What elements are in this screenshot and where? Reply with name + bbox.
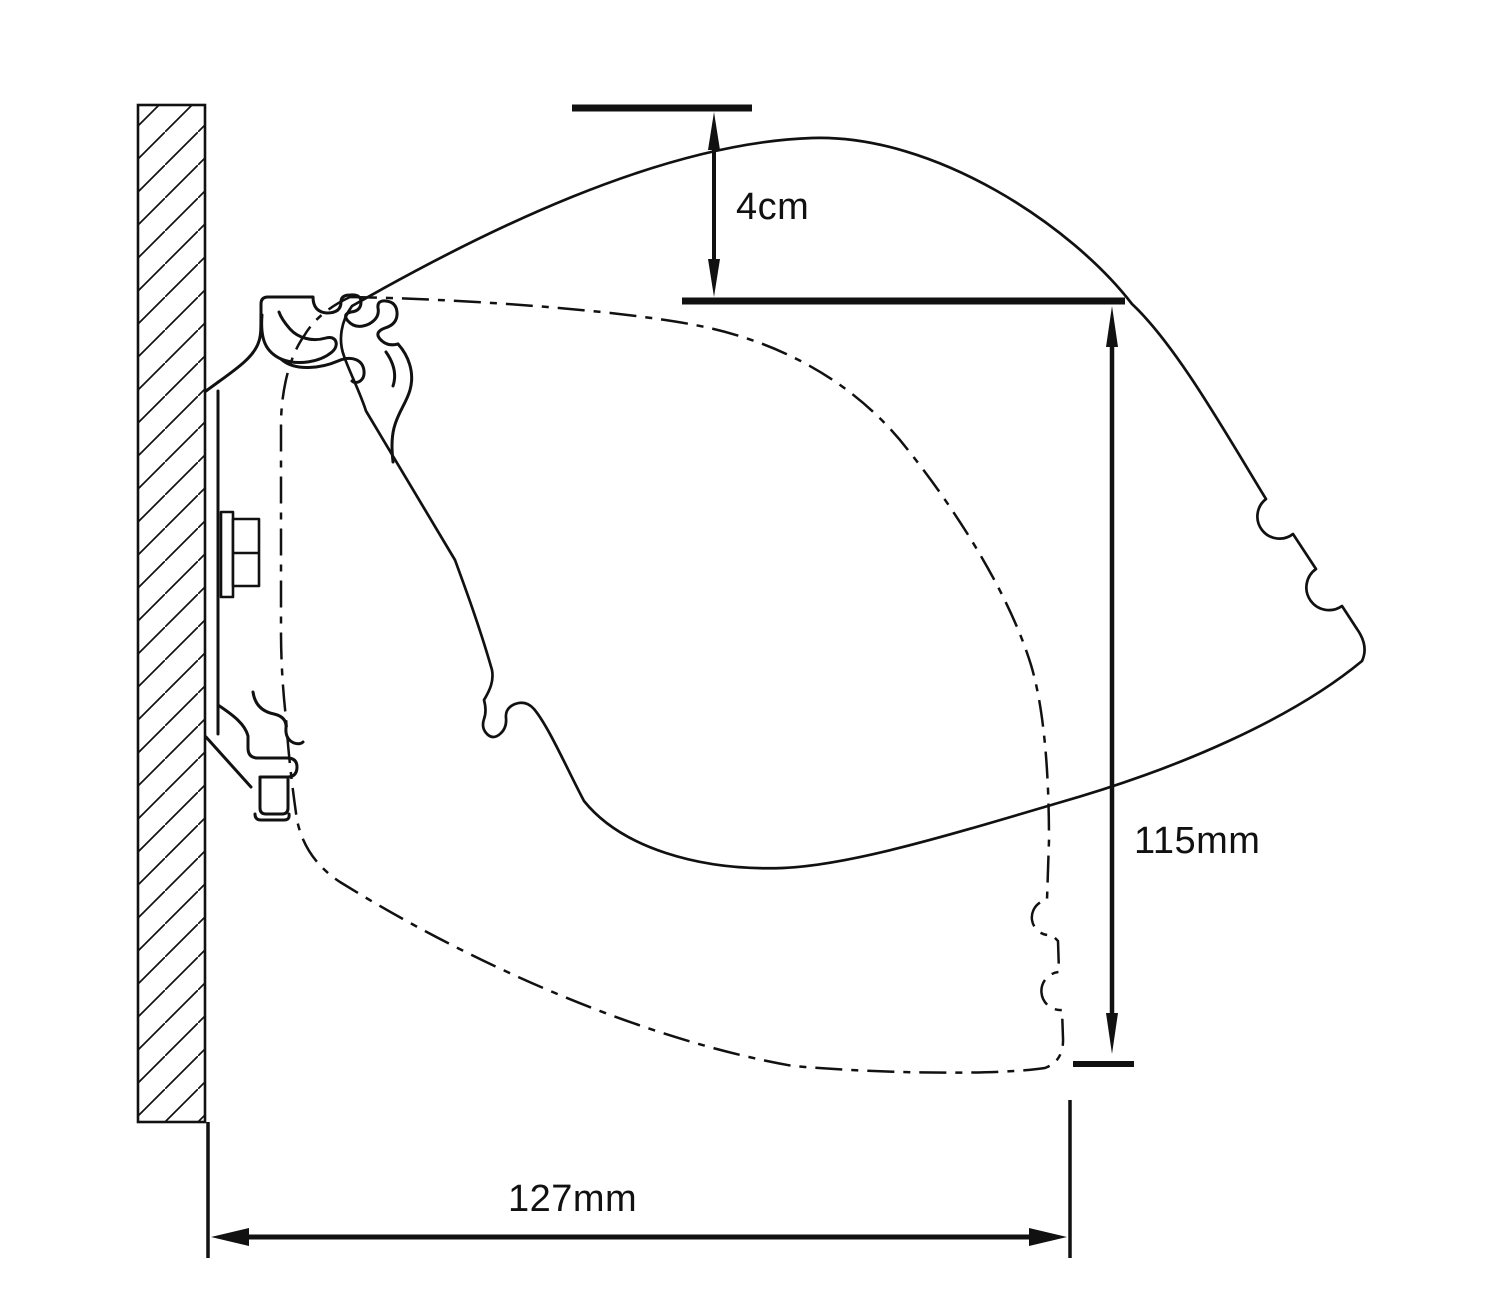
cassette-extended-outline [341, 138, 1365, 868]
bracket-jaw-inner [386, 352, 395, 386]
dimension-127mm-arrow-left [211, 1228, 249, 1246]
wall-hatch [138, 105, 205, 1122]
bracket-inner-cavity [262, 312, 337, 363]
dimension-4cm-arrow-down [708, 259, 720, 297]
dimension-115mm [1073, 306, 1134, 1064]
dimension-115mm-arrow-up [1106, 306, 1118, 347]
bracket-jaw [392, 344, 412, 462]
bracket-lower-diagonal [206, 737, 251, 787]
dimension-label-115mm: 115mm [1134, 822, 1260, 860]
dimension-4cm [572, 108, 752, 297]
bracket-upper-contour [206, 295, 398, 391]
dimension-4cm-arrow-up [708, 112, 720, 150]
dimension-127mm-arrow-right [1029, 1228, 1067, 1246]
wall-section [138, 105, 205, 1122]
dimension-label-4cm: 4cm [736, 188, 809, 226]
dimension-label-127mm: 127mm [508, 1180, 637, 1218]
mounting-bolt [221, 512, 259, 597]
dimension-127mm [208, 1100, 1070, 1258]
technical-drawing-canvas: 4cm 115mm 127mm [0, 0, 1500, 1304]
dimension-115mm-arrow-down [1106, 1013, 1118, 1054]
bracket-arm-curl [253, 692, 303, 744]
bolt-washer [221, 512, 233, 597]
